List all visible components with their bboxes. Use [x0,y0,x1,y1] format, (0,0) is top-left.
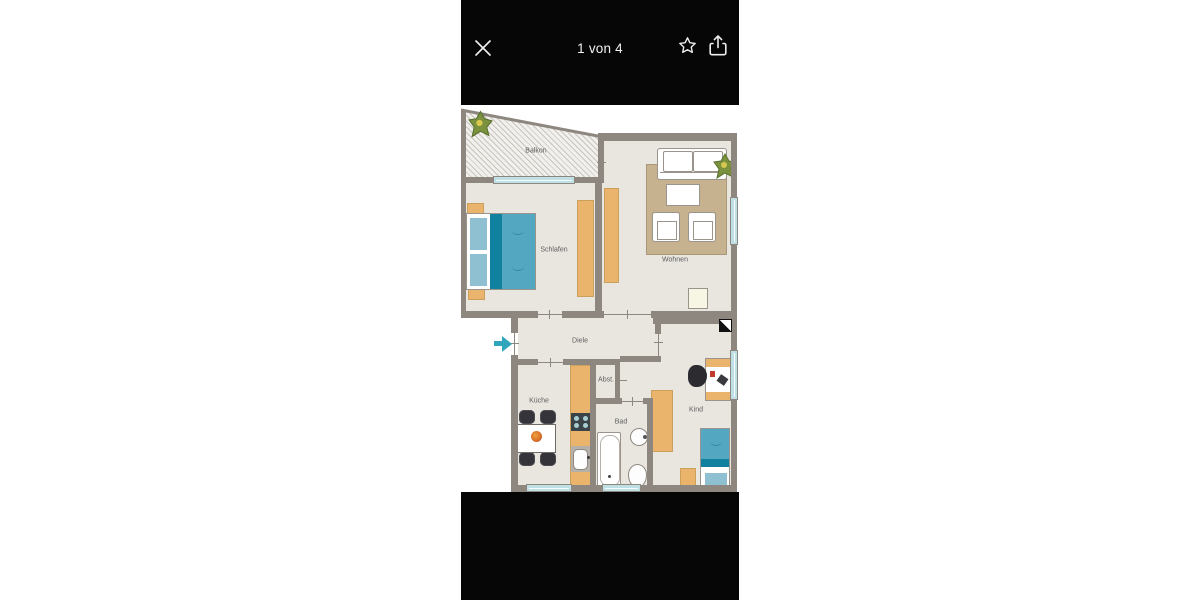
room-label-bad: Bad [615,419,627,426]
image-viewer-bottombar [461,492,739,600]
wall [596,398,622,404]
armchair-cushion [657,221,677,240]
window-pane [734,200,736,242]
wall [518,359,538,365]
wall [461,111,466,183]
fruit-bowl [531,431,542,442]
wall [595,311,604,318]
pillow [469,253,488,287]
phone-viewport: 1 von 4 [461,0,739,600]
door-tick [654,342,663,343]
wall [647,398,653,487]
armchair-cushion [693,221,713,240]
wall [598,133,737,141]
bed-blanket [701,429,729,459]
washbasin [630,428,648,446]
room-label-abst: Abst. [598,377,614,384]
bed-runner [701,459,729,467]
window [526,484,572,492]
share-icon [708,34,728,62]
stove [571,413,592,431]
desk [705,358,731,401]
room-label-schlafen: Schlafen [540,247,567,254]
door-line [658,334,659,357]
wall [655,318,661,334]
door-line [615,380,627,381]
door-tick [597,162,606,163]
room-label-kueche: Küche [529,398,549,405]
window [730,197,738,245]
door-tick [550,358,551,367]
wall [651,311,737,318]
window [730,350,738,400]
desk-item [717,374,729,386]
desk-item [710,371,715,377]
window-pane [529,488,569,490]
share-button[interactable] [707,36,729,60]
door-line [538,314,562,315]
burner [574,423,579,428]
dining-chair [540,410,556,424]
door-tick [627,310,628,319]
dining-table [515,424,556,453]
window-pane [605,488,638,490]
child-bed [700,428,730,488]
sofa-cushion [663,151,693,172]
star-icon [677,35,698,61]
desk-shelf [706,359,730,367]
bathtub-inner [600,435,620,487]
dining-chair [540,452,556,466]
bathtub [597,432,621,488]
wardrobe [577,200,594,297]
wardrobe [651,390,673,452]
wall [461,177,466,318]
entrance-arrow [494,341,502,346]
blanket-fold [512,262,524,271]
wall [511,355,518,492]
door-line [514,333,515,355]
door-tick [632,397,633,406]
desk-shelf [706,392,730,400]
double-bed [466,213,536,290]
dining-chair [519,452,535,466]
office-chair [688,365,707,387]
burner [574,416,579,421]
bed-runner [490,214,502,289]
entrance-arrow-head [502,336,512,352]
room-label-kind: Kind [689,407,703,414]
kitchen-sink [571,446,592,472]
wall [461,311,538,318]
wall [590,359,596,487]
coffee-table [666,184,700,206]
blanket-fold [512,226,524,235]
dining-chair [519,410,535,424]
screenshot-canvas: 1 von 4 [0,0,1200,600]
favorite-button[interactable] [676,37,698,59]
window [493,176,575,184]
wardrobe [604,188,619,283]
sink-basin [573,449,588,470]
image-viewer-topbar: 1 von 4 [461,0,739,105]
bed-blanket [502,214,535,289]
wall [595,177,602,318]
window-pane [734,353,736,397]
door-tick [549,310,550,319]
burner [583,416,588,421]
room-label-wohnen: Wohnen [662,257,688,264]
shaft-symbol [719,319,732,332]
floorplan-image[interactable]: Balkon Schlafen Wohnen Diele Küche Abst.… [461,105,739,492]
bathtub-drain [608,475,611,478]
wall [655,357,661,362]
wall [511,311,518,333]
sideboard [688,288,708,309]
window [602,484,641,492]
window-pane [496,180,572,182]
room-label-diele: Diele [572,338,588,345]
room-label-balkon: Balkon [525,148,546,155]
burner [583,423,588,428]
armchair [652,212,680,242]
armchair [688,212,716,242]
blanket-fold [710,437,722,446]
pillow [469,217,488,251]
balcony-plant [468,109,493,139]
wall [598,135,604,183]
